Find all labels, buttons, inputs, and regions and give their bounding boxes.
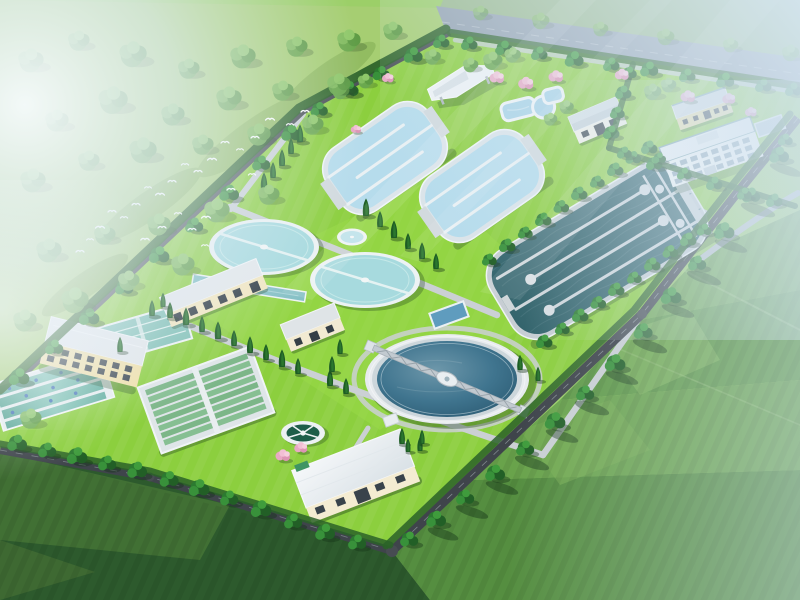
mist-left — [0, 180, 220, 480]
treatment-plant-scene: Aerial 3D rendering of a wastewater trea… — [0, 0, 800, 600]
haze-right — [500, 80, 800, 600]
aerial-rendering: Aerial 3D rendering of a wastewater trea… — [0, 0, 800, 600]
